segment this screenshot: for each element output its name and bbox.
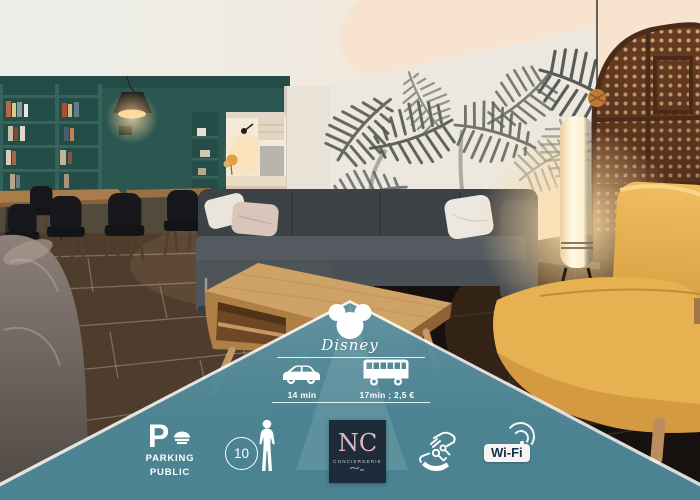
bus-time-label: 17min ; 2,5 € bbox=[342, 390, 432, 400]
brand-initials: NC bbox=[338, 431, 377, 455]
person-icon bbox=[255, 419, 279, 473]
key-handover-icon bbox=[414, 429, 462, 475]
info-overlay: Disney 14 min 17min ; 2,5 € P bbox=[0, 0, 700, 500]
brand-logo: NC CONCIERGERIE bbox=[329, 420, 386, 483]
wifi-badge: Wi-Fi bbox=[484, 444, 530, 462]
divider-bottom bbox=[272, 402, 430, 403]
parking-p-letter: P bbox=[148, 423, 169, 450]
parking-line1: PARKING bbox=[138, 453, 202, 464]
car-icon bbox=[281, 363, 321, 387]
brand-signature-squiggle bbox=[349, 464, 367, 472]
capacity-badge: 10 bbox=[225, 437, 258, 470]
bus-icon bbox=[362, 357, 410, 387]
parking-info: P PARKING PUBLIC bbox=[138, 423, 202, 478]
car-time-label: 14 min bbox=[257, 390, 347, 400]
disney-label: Disney bbox=[280, 336, 420, 354]
listing-photo-card[interactable]: Disney 14 min 17min ; 2,5 € P bbox=[0, 0, 700, 500]
parking-line2: PUBLIC bbox=[138, 467, 202, 478]
parking-deck-icon bbox=[172, 429, 192, 445]
